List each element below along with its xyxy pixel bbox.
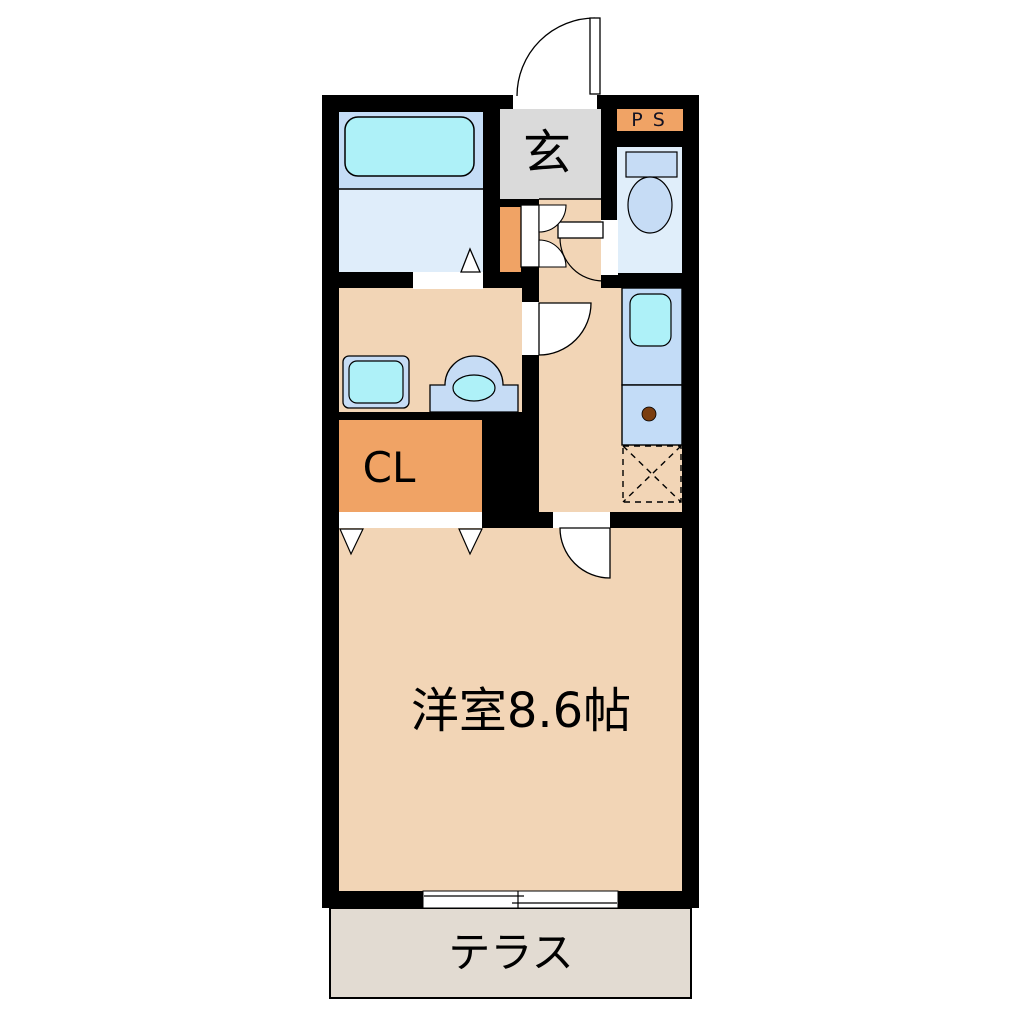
washroom-door-gap <box>522 302 539 355</box>
toilet-door-leaf <box>558 222 603 238</box>
toilet-bowl <box>628 177 672 233</box>
kitchen-sink <box>630 294 671 346</box>
pipe-space-label: P S <box>631 109 667 131</box>
shoe-cabinet <box>500 207 521 272</box>
shoe-cabinet-front <box>521 205 539 267</box>
bathtub <box>345 117 474 176</box>
entrance-label: 玄 <box>523 125 571 181</box>
entrance-door-leaf <box>590 18 600 94</box>
washing-machine-drum <box>349 361 403 403</box>
toilet-tank <box>626 152 677 177</box>
bathroom-door-gap <box>413 272 483 289</box>
terrace-sliding-window <box>423 891 618 908</box>
entrance-door-gap <box>513 92 597 109</box>
terrace-label: テラス <box>448 928 573 977</box>
closet-label: CL <box>363 443 416 492</box>
wash-basin-bowl <box>453 375 495 401</box>
floor-plan-svg: 玄 P S CL 洋室8.6帖 テラス <box>0 0 1020 1020</box>
main-room-door-gap <box>553 512 610 528</box>
stove-burner <box>642 407 656 421</box>
entrance-door-arc <box>517 18 595 96</box>
closet-opening <box>339 512 482 528</box>
floor-plan-page: 玄 P S CL 洋室8.6帖 テラス <box>0 0 1020 1020</box>
bathroom-floor <box>339 189 483 272</box>
main-room-label: 洋室8.6帖 <box>411 683 631 739</box>
